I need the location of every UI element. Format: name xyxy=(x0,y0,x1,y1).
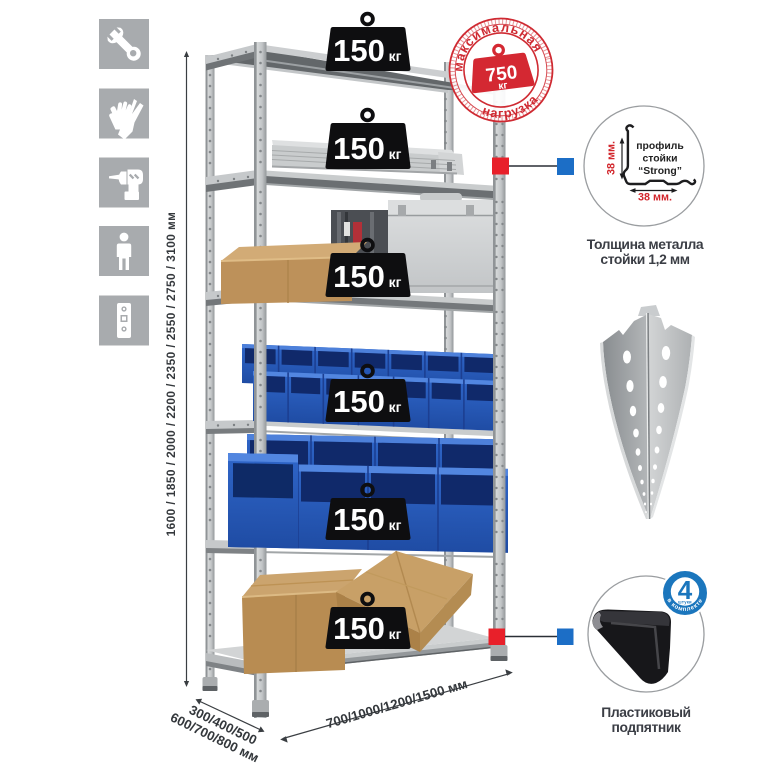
svg-text:кг: кг xyxy=(389,517,402,533)
svg-text:1600 / 1850 / 2000 / 2200 / 23: 1600 / 1850 / 2000 / 2200 / 2350 / 2550 … xyxy=(164,212,178,537)
svg-text:150: 150 xyxy=(333,33,385,68)
svg-text:стойки 1,2 мм: стойки 1,2 мм xyxy=(600,251,689,267)
svg-text:38 мм.: 38 мм. xyxy=(606,141,618,175)
svg-text:Толщина металла: Толщина металла xyxy=(587,236,704,252)
svg-text:кг: кг xyxy=(389,48,402,64)
svg-text:150: 150 xyxy=(333,131,385,166)
svg-text:кг: кг xyxy=(498,80,508,92)
svg-text:“Strong”: “Strong” xyxy=(638,166,682,177)
svg-text:профиль: профиль xyxy=(636,140,683,152)
svg-text:кг: кг xyxy=(389,626,402,642)
svg-text:700/1000/1200/1500 мм: 700/1000/1200/1500 мм xyxy=(324,676,469,731)
svg-text:стойки: стойки xyxy=(642,154,677,165)
svg-text:38 мм.: 38 мм. xyxy=(638,192,672,204)
svg-text:150: 150 xyxy=(333,611,385,646)
svg-text:150: 150 xyxy=(333,384,385,419)
svg-text:подпятник: подпятник xyxy=(611,719,681,735)
svg-text:кг: кг xyxy=(389,399,402,415)
svg-text:кг: кг xyxy=(389,274,402,290)
svg-text:Пластиковый: Пластиковый xyxy=(601,704,690,720)
svg-text:кг: кг xyxy=(389,146,402,162)
svg-text:150: 150 xyxy=(333,259,385,294)
svg-text:150: 150 xyxy=(333,502,385,537)
svg-text:штуки: штуки xyxy=(678,600,692,605)
